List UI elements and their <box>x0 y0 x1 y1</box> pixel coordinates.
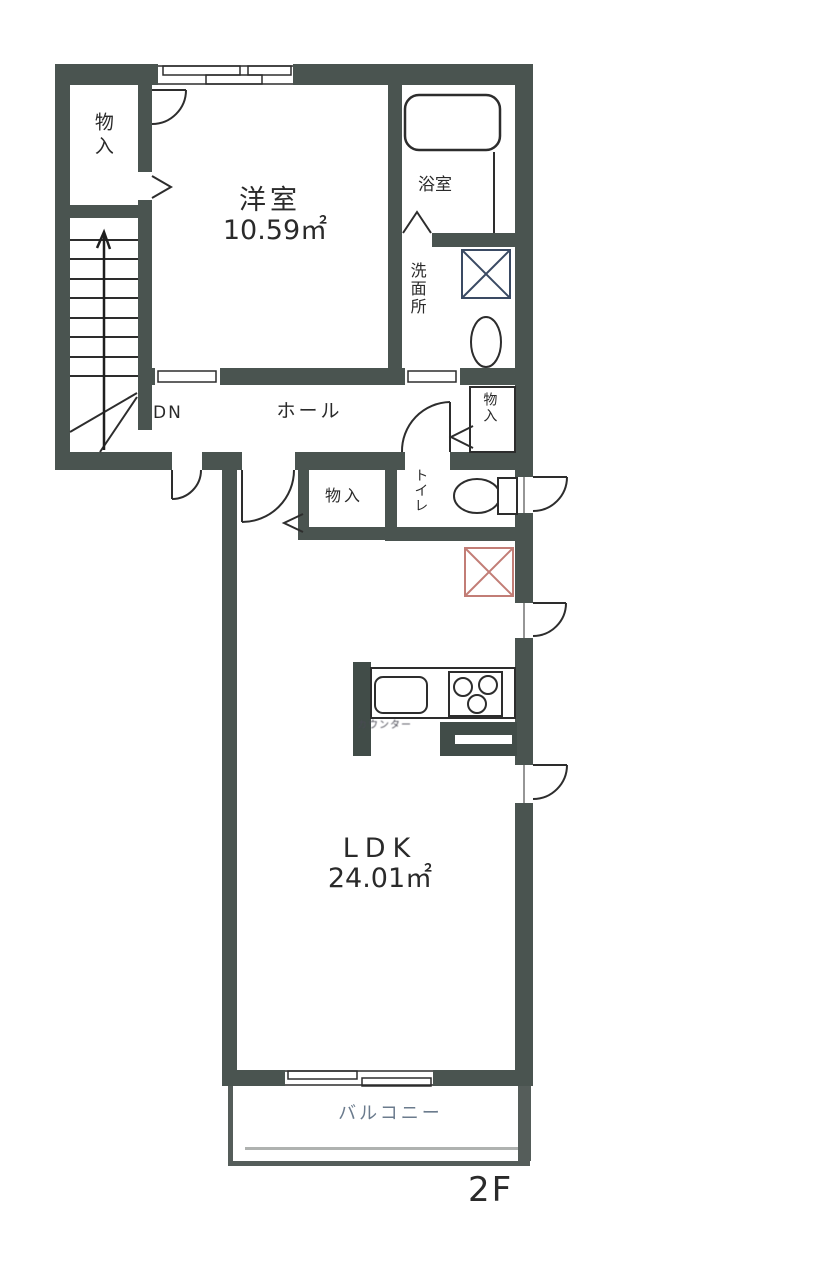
wall-segment <box>138 200 152 430</box>
ldk-area: 24.01㎡ <box>295 864 465 894</box>
wall-segment <box>295 452 405 470</box>
wall-segment <box>222 452 237 1086</box>
bath-label: 浴室 <box>405 176 465 195</box>
door-arc-ldk <box>242 470 294 522</box>
storage-upper-left-label: 物入 <box>92 112 113 160</box>
wall-segment <box>222 1070 285 1086</box>
toilet-fixture <box>454 478 517 514</box>
western-room-label: 洋室 <box>205 186 335 216</box>
floor-plan: 物入 洋室 10.59㎡ 浴室 洗面所 DN ホール 物入 物入 トイレ カウン… <box>0 0 818 1280</box>
wall-segment <box>515 803 533 1086</box>
storage-center-label: 物入 <box>312 487 376 505</box>
window-balcony <box>285 1070 433 1086</box>
kitchen-side-panel <box>353 662 371 756</box>
wall-segment <box>460 368 533 385</box>
sliding-panel-washroom <box>408 371 456 382</box>
wall-segment <box>220 368 405 385</box>
wall-segment <box>298 527 397 540</box>
wall-segment <box>55 64 70 470</box>
wall-segment <box>138 80 152 172</box>
wall-segment <box>450 452 533 470</box>
wall-segment <box>388 80 402 368</box>
wall-segment <box>515 64 533 477</box>
floor-label: 2F <box>468 1172 513 1209</box>
wall-segment <box>432 233 515 247</box>
balcony-wall-right <box>518 1086 531 1161</box>
storage-hall-label: 物入 <box>481 392 496 424</box>
stairs-up-arrow <box>97 232 110 450</box>
western-room-area: 10.59㎡ <box>195 216 355 246</box>
toilet-label: トイレ <box>412 468 427 513</box>
kitchen-bar-slit <box>455 735 512 744</box>
balcony-inner-line <box>245 1147 518 1150</box>
wall-segment <box>433 1070 533 1086</box>
wall-segment <box>55 452 172 470</box>
door-arc-left <box>172 470 201 499</box>
kitchen-counter-label: カウンター <box>357 720 412 731</box>
washroom-basin <box>471 317 501 367</box>
kitchen-stove <box>449 672 502 716</box>
hall-label: ホール <box>262 401 357 422</box>
sliding-panel-western-room <box>158 371 216 382</box>
red-x-box <box>465 548 513 596</box>
washroom-label: 洗面所 <box>408 262 426 316</box>
wall-segment <box>515 638 533 765</box>
kitchen-counter <box>371 668 515 718</box>
bifold-icon-hall-closet <box>451 426 473 448</box>
wall-segment <box>385 527 533 541</box>
window-top <box>158 64 293 85</box>
bath-folding-door <box>403 212 431 233</box>
wall-segment <box>138 368 155 385</box>
bathtub <box>405 95 500 150</box>
door-arc-western-room <box>152 90 186 124</box>
bifold-icon-closet <box>152 176 171 198</box>
kitchen-sink <box>375 677 427 713</box>
stairs-down-label: DN <box>153 404 183 423</box>
wall-segment <box>293 64 533 85</box>
balcony-wall-left <box>228 1086 233 1166</box>
balcony-label: バルコニー <box>318 1104 463 1124</box>
stairs <box>70 240 138 452</box>
ldk-label: LDK <box>310 834 450 864</box>
wall-segment <box>66 205 150 218</box>
balcony-wall-bottom <box>228 1161 530 1166</box>
washing-machine-box <box>462 250 510 298</box>
door-arc-hall <box>402 402 450 452</box>
